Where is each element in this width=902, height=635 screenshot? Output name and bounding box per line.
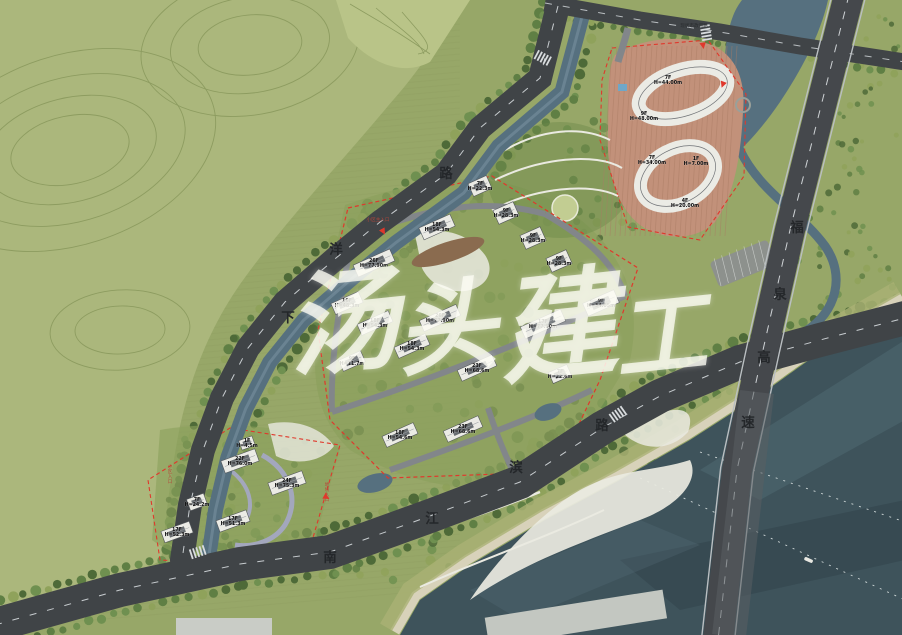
street-tree bbox=[171, 595, 179, 603]
street-tree bbox=[73, 623, 80, 630]
tree bbox=[883, 17, 887, 21]
street-tree bbox=[311, 248, 320, 257]
street-tree bbox=[668, 364, 676, 372]
street-tree bbox=[739, 333, 748, 342]
master-plan-canvas: 下洋路南江滨路福泉高速小区主入口现状市政道路小区入口地块入口7FH=44.00m… bbox=[0, 0, 902, 635]
tree bbox=[817, 206, 824, 213]
street-tree bbox=[690, 353, 699, 362]
street-tree bbox=[149, 603, 156, 610]
tree bbox=[851, 222, 858, 229]
street-tree bbox=[580, 463, 589, 472]
street-tree bbox=[133, 604, 142, 613]
street-tree bbox=[88, 570, 97, 579]
street-tree bbox=[268, 387, 276, 395]
street-tree bbox=[421, 165, 429, 173]
street-tree bbox=[583, 48, 590, 55]
building-height-label: H=20.00m bbox=[671, 203, 699, 209]
building-height-label: H=22.6m bbox=[548, 374, 573, 380]
building-height-label: H=28.3m bbox=[547, 261, 572, 267]
building-floors-label: 9F bbox=[530, 233, 537, 239]
tree bbox=[885, 265, 891, 271]
street-tree bbox=[393, 548, 402, 557]
street-tree bbox=[291, 576, 298, 583]
street-tree bbox=[866, 66, 873, 73]
street-tree bbox=[483, 515, 491, 523]
building-floors-label: 1F bbox=[244, 438, 251, 444]
street-tree bbox=[379, 551, 388, 560]
street-tree bbox=[551, 110, 560, 119]
street-tree bbox=[286, 355, 293, 362]
building-floors-label: 17F bbox=[172, 527, 182, 533]
building-floors-label: 7F bbox=[194, 497, 201, 503]
street-tree bbox=[247, 315, 254, 322]
street-tree bbox=[610, 395, 617, 402]
street-tree bbox=[319, 571, 327, 579]
building-floors-label: 7F bbox=[557, 369, 564, 375]
tree bbox=[860, 140, 864, 144]
tree bbox=[852, 156, 857, 161]
building-height-label: H=4.5m bbox=[236, 443, 258, 449]
tree bbox=[854, 278, 861, 285]
street-tree bbox=[8, 591, 19, 602]
street-tree bbox=[713, 343, 722, 352]
tree bbox=[848, 251, 855, 258]
xiayang-road-name-char: 洋 bbox=[329, 241, 343, 258]
street-tree bbox=[610, 24, 616, 30]
building-height-label: H=76.0m bbox=[228, 461, 253, 467]
xiayang-road-name-char: 路 bbox=[439, 165, 453, 182]
street-tree bbox=[330, 521, 340, 531]
tree bbox=[867, 246, 872, 251]
building-height-label: H=44.00m bbox=[654, 80, 682, 86]
street-tree bbox=[356, 559, 364, 567]
tree bbox=[853, 138, 859, 144]
tree bbox=[864, 36, 869, 41]
street-tree bbox=[145, 557, 153, 565]
street-tree bbox=[261, 397, 269, 405]
building-floors-label: 4F bbox=[682, 198, 689, 204]
tree bbox=[891, 46, 898, 53]
street-tree bbox=[303, 572, 311, 580]
tree bbox=[873, 254, 877, 258]
building-height-label: H=54.6m bbox=[388, 435, 413, 441]
street-tree bbox=[135, 561, 143, 569]
building-floors-label: 7F bbox=[477, 181, 484, 187]
street-tree bbox=[302, 258, 310, 266]
building-floors-label: 7F bbox=[665, 75, 672, 81]
street-tree bbox=[853, 63, 861, 71]
street-tree bbox=[214, 368, 222, 376]
building-height-label: H=48.3m bbox=[335, 303, 360, 309]
street-tree bbox=[586, 34, 596, 44]
building-height-label: H=77.90m bbox=[529, 324, 557, 330]
street-tree bbox=[342, 520, 350, 528]
building-floors-label: 23F bbox=[458, 424, 468, 430]
street-tree bbox=[621, 437, 629, 445]
building-height-label: H=54.3m bbox=[400, 346, 425, 352]
building-floors-label: 7F bbox=[649, 155, 656, 161]
street-tree bbox=[321, 241, 329, 249]
plaza bbox=[176, 618, 272, 635]
tree bbox=[848, 146, 855, 153]
street-tree bbox=[59, 626, 66, 633]
entrance-label: 地块入口 bbox=[325, 481, 330, 503]
building-height-label: H=11.7m bbox=[340, 361, 365, 367]
street-tree bbox=[442, 140, 451, 149]
street-tree bbox=[278, 366, 286, 374]
street-tree bbox=[457, 524, 464, 531]
fuquan-expressway-name-char: 速 bbox=[741, 414, 755, 431]
entrance-label: 现状市政道路 bbox=[680, 22, 708, 29]
tree bbox=[847, 230, 851, 234]
building-height-label: H=48.00m bbox=[630, 116, 658, 122]
street-tree bbox=[277, 576, 284, 583]
tree bbox=[356, 571, 363, 578]
street-tree bbox=[254, 579, 261, 586]
tree bbox=[863, 265, 870, 272]
building-height-label: H=34.05m bbox=[587, 303, 615, 309]
tree bbox=[862, 89, 868, 95]
street-tree bbox=[574, 83, 581, 90]
street-tree bbox=[430, 488, 439, 497]
building-floors-label: 23F bbox=[472, 363, 482, 369]
tree bbox=[381, 568, 389, 576]
tree bbox=[825, 189, 832, 196]
street-tree bbox=[484, 97, 491, 104]
street-tree bbox=[272, 376, 281, 385]
street-tree bbox=[522, 65, 530, 73]
street-tree bbox=[592, 454, 600, 462]
street-tree bbox=[19, 590, 26, 597]
street-tree bbox=[253, 409, 262, 418]
street-tree bbox=[588, 20, 594, 26]
street-tree bbox=[575, 69, 586, 80]
building-floors-label: 9F bbox=[556, 256, 563, 262]
building-floors-label: 18F bbox=[407, 341, 417, 347]
entrance-label: 小区主入口 bbox=[367, 216, 390, 223]
street-tree bbox=[679, 357, 688, 366]
street-tree bbox=[198, 590, 208, 600]
street-tree bbox=[689, 402, 696, 409]
building-height-label: H=28.3m bbox=[494, 213, 519, 219]
street-tree bbox=[646, 372, 654, 380]
street-tree bbox=[715, 41, 721, 47]
tree bbox=[389, 576, 397, 584]
building-floors-label: 9F bbox=[349, 356, 356, 362]
street-tree bbox=[209, 589, 218, 598]
tree bbox=[869, 86, 873, 90]
nanjiangbin-road-name-char: 滨 bbox=[509, 459, 523, 476]
building-floors-label: 17F bbox=[538, 319, 548, 325]
fuquan-expressway-name-char: 福 bbox=[789, 219, 804, 236]
building-height-label: H=68.6m bbox=[465, 368, 490, 374]
street-tree bbox=[597, 22, 604, 29]
building-floors-label: 26F bbox=[435, 313, 445, 319]
street-tree bbox=[110, 610, 117, 617]
street-tree bbox=[308, 324, 318, 334]
building-floors-label: 26F bbox=[369, 258, 379, 264]
street-tree bbox=[418, 538, 426, 546]
tree bbox=[876, 14, 881, 19]
street-tree bbox=[456, 121, 466, 131]
street-tree bbox=[263, 296, 270, 303]
tree bbox=[842, 115, 846, 119]
tree bbox=[887, 277, 892, 282]
tree bbox=[860, 224, 865, 229]
street-tree bbox=[65, 579, 72, 586]
street-tree bbox=[400, 498, 409, 507]
street-tree bbox=[265, 579, 273, 587]
building-height-label: H=34.00m bbox=[638, 160, 666, 166]
building-floors-label: 9F bbox=[598, 298, 605, 304]
entrance-label: 小区入口 bbox=[168, 463, 173, 485]
street-tree bbox=[122, 562, 131, 571]
street-tree bbox=[578, 59, 587, 68]
building-floors-label: 24F bbox=[282, 478, 292, 484]
building-height-label: H=75.3m bbox=[275, 483, 300, 489]
street-tree bbox=[222, 585, 231, 594]
building-height-label: H=24.2m bbox=[185, 502, 210, 508]
street-tree bbox=[332, 570, 339, 577]
street-tree bbox=[657, 367, 666, 376]
tree bbox=[618, 219, 625, 226]
tree bbox=[894, 133, 899, 138]
street-tree bbox=[786, 321, 794, 329]
building-height-label: H=51.3m bbox=[221, 521, 246, 527]
street-tree bbox=[97, 615, 106, 624]
tree bbox=[868, 101, 874, 107]
fuquan-expressway-name-char: 泉 bbox=[773, 286, 787, 303]
street-tree bbox=[365, 512, 373, 520]
street-tree bbox=[221, 356, 229, 364]
nanjiangbin-road-name-char: 江 bbox=[425, 510, 439, 527]
building-floors-label: 9F bbox=[641, 111, 648, 117]
building-floors-label: 9F bbox=[503, 208, 510, 214]
street-tree bbox=[890, 70, 898, 78]
street-tree bbox=[230, 335, 238, 343]
street-tree bbox=[523, 56, 531, 64]
building-height-label: H=54.3m bbox=[363, 323, 388, 329]
street-tree bbox=[469, 520, 477, 528]
tree bbox=[889, 22, 894, 27]
nanjiangbin-road-name-char: 南 bbox=[323, 549, 337, 566]
fuquan-expressway-name-char: 高 bbox=[757, 349, 771, 366]
building-floors-label: 18F bbox=[370, 318, 380, 324]
tree bbox=[853, 189, 859, 195]
street-tree bbox=[293, 266, 301, 274]
tree bbox=[847, 102, 854, 109]
street-tree bbox=[432, 532, 441, 541]
tree bbox=[878, 267, 883, 272]
site-plan-rendering: 下洋路南江滨路福泉高速小区主入口现状市政道路小区入口地块入口7FH=44.00m… bbox=[0, 0, 902, 635]
pond bbox=[618, 84, 627, 91]
street-tree bbox=[292, 344, 303, 355]
street-tree bbox=[207, 378, 215, 386]
street-tree bbox=[403, 543, 411, 551]
building-height-label: H=54.3m bbox=[425, 227, 450, 233]
street-tree bbox=[639, 378, 646, 385]
building-floors-label: 18F bbox=[432, 222, 442, 228]
building-floors-label: 22F bbox=[235, 456, 245, 462]
tree bbox=[839, 141, 845, 147]
tree bbox=[816, 251, 822, 257]
nanjiangbin-road-name-char: 路 bbox=[595, 417, 609, 434]
tree bbox=[856, 166, 862, 172]
street-tree bbox=[53, 580, 62, 589]
street-tree bbox=[646, 30, 653, 37]
street-tree bbox=[634, 28, 641, 35]
tree bbox=[858, 229, 863, 234]
building-floors-label: 16F bbox=[342, 298, 352, 304]
building-floors-label: 1F bbox=[693, 156, 700, 162]
building-height-label: H=77.90m bbox=[360, 263, 388, 269]
street-tree bbox=[30, 585, 41, 596]
tree bbox=[831, 210, 836, 215]
tree bbox=[590, 117, 599, 126]
street-tree bbox=[185, 593, 193, 601]
street-tree bbox=[122, 608, 130, 616]
street-tree bbox=[366, 555, 376, 565]
tree bbox=[859, 273, 865, 279]
street-tree bbox=[560, 103, 568, 111]
building-height-label: H=77.90m bbox=[426, 318, 454, 324]
building-height-label: H=28.3m bbox=[521, 238, 546, 244]
tree bbox=[842, 164, 848, 170]
street-tree bbox=[658, 32, 665, 39]
tree bbox=[877, 81, 883, 87]
tree bbox=[855, 101, 861, 107]
building-floors-label: 17F bbox=[228, 516, 238, 522]
street-tree bbox=[320, 527, 328, 535]
tree bbox=[838, 111, 842, 115]
tree bbox=[817, 264, 822, 269]
building-height-label: H=22.3m bbox=[468, 186, 493, 192]
street-tree bbox=[111, 566, 119, 574]
street-tree bbox=[569, 95, 578, 104]
tree bbox=[847, 172, 852, 177]
building-height-label: H=68.6m bbox=[451, 429, 476, 435]
building-floors-label: 18F bbox=[395, 430, 405, 436]
street-tree bbox=[571, 468, 579, 476]
street-tree bbox=[532, 20, 541, 29]
tree bbox=[834, 184, 841, 191]
xiayang-road-name-char: 下 bbox=[281, 310, 295, 326]
building-height-label: H=7.00m bbox=[684, 161, 709, 167]
street-tree bbox=[702, 349, 711, 358]
street-tree bbox=[401, 179, 409, 187]
street-tree bbox=[284, 273, 293, 282]
building-height-label: H=52.3m bbox=[165, 532, 190, 538]
